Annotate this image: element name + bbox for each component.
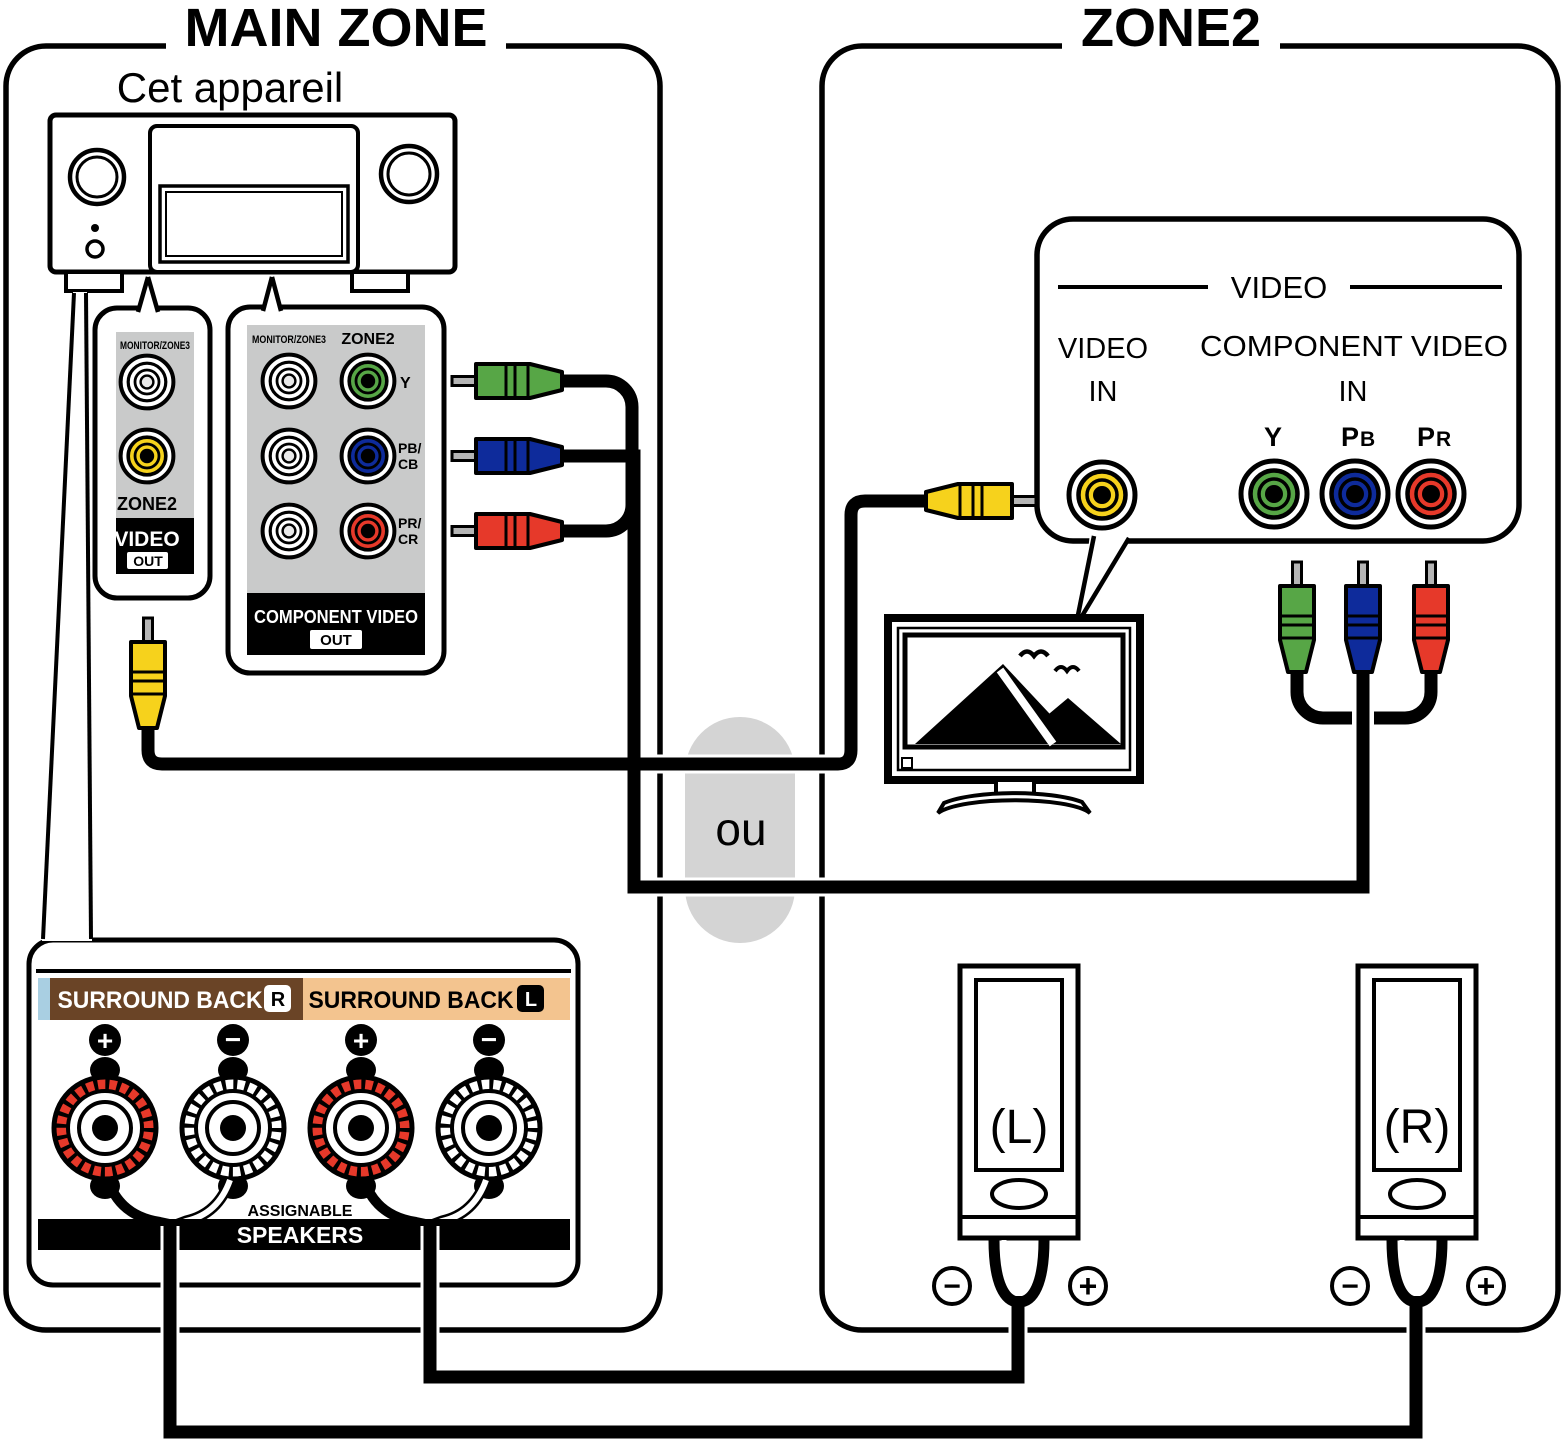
component-monitor-y-jack-icon xyxy=(263,355,316,408)
polarity-plus-1: + xyxy=(89,1024,121,1056)
connection-diagram: MAIN ZONE ZONE2 Cet appareil MONITOR/ZON… xyxy=(0,0,1562,1444)
svg-text:−: − xyxy=(1341,1270,1359,1303)
component-out-header-right: ZONE2 xyxy=(341,331,394,348)
header-accent-sliver xyxy=(38,978,50,1020)
svg-text:−: − xyxy=(225,1024,241,1055)
component-zone2-pb-jack-icon xyxy=(342,430,395,483)
bubble-pr-sub: R xyxy=(1436,428,1451,451)
polarity-minus-2: − xyxy=(473,1024,505,1056)
power-led-icon xyxy=(91,224,99,232)
speaker-terminal-panel: SURROUND BACK R SURROUND BACK L + − + − xyxy=(29,940,578,1285)
surround-back-r-label: SURROUND BACK xyxy=(58,987,264,1014)
polarity-plus-2: + xyxy=(345,1024,377,1056)
bubble-pb-sub: B xyxy=(1360,428,1375,451)
or-capsule: ou xyxy=(685,717,795,943)
speakers-label: SPEAKERS xyxy=(237,1222,364,1248)
component-zone2-pr-jack-icon xyxy=(342,505,395,558)
power-button-icon xyxy=(87,241,103,257)
device-label: Cet appareil xyxy=(117,64,343,111)
svg-text:+: + xyxy=(97,1025,113,1056)
component-out-footer: COMPONENT VIDEO xyxy=(254,607,418,627)
badge-l: L xyxy=(525,989,537,1011)
video-out-video-label: VIDEO xyxy=(114,528,179,551)
speaker-right-plus: + xyxy=(1468,1268,1504,1304)
zone2-pb-in-jack-icon xyxy=(1322,461,1388,527)
component-out-out-label: OUT xyxy=(320,632,352,649)
speaker-left-plus: + xyxy=(1070,1268,1106,1304)
component-video-out-panel: MONITOR/ZONE3 ZONE2 Y PB/ CB PR/ CR COMP… xyxy=(228,307,444,673)
main-zone-title: MAIN ZONE xyxy=(185,0,488,58)
bubble-component-l1: COMPONENT VIDEO xyxy=(1200,331,1508,363)
component-monitor-pb-jack-icon xyxy=(263,430,316,483)
video-out-out-label: OUT xyxy=(133,553,163,569)
video-out-panel: MONITOR/ZONE3 ZONE2 VIDEO OUT xyxy=(95,308,210,598)
component-out-cr-label: CR xyxy=(398,531,418,547)
zone2-video-out-jack-icon xyxy=(121,430,174,483)
receiver-foot-right xyxy=(352,272,408,291)
component-out-y-label: Y xyxy=(400,375,411,392)
zone2-video-in-jack-icon xyxy=(1069,462,1135,528)
bubble-pr-main: P xyxy=(1417,422,1435,452)
polarity-minus-1: − xyxy=(217,1024,249,1056)
video-out-header: MONITOR/ZONE3 xyxy=(120,340,190,352)
speaker-left-label: (L) xyxy=(990,1101,1049,1154)
bubble-video-in-l1: VIDEO xyxy=(1058,333,1148,365)
svg-text:+: + xyxy=(1079,1268,1098,1304)
zone2-pr-in-jack-icon xyxy=(1398,461,1464,527)
component-monitor-pr-jack-icon xyxy=(263,505,316,558)
zone2-title: ZONE2 xyxy=(1081,0,1261,58)
bubble-component-l2: IN xyxy=(1339,376,1368,408)
surround-back-l-label: SURROUND BACK xyxy=(309,987,515,1014)
component-out-pb-label: PB/ xyxy=(398,440,421,456)
bubble-video-in-l2: IN xyxy=(1089,376,1118,408)
video-out-zone2-label: ZONE2 xyxy=(117,494,177,514)
receiver-foot-left xyxy=(66,272,122,291)
zone2-video-bubble: VIDEO VIDEO IN COMPONENT VIDEO IN Y P B … xyxy=(1037,219,1519,541)
component-out-cb-label: CB xyxy=(398,456,418,472)
svg-text:−: − xyxy=(943,1270,961,1303)
component-zone2-y-jack-icon xyxy=(342,355,395,408)
diagram-canvas: MAIN ZONE ZONE2 Cet appareil MONITOR/ZON… xyxy=(0,0,1562,1444)
svg-text:+: + xyxy=(1477,1268,1496,1304)
badge-r: R xyxy=(271,989,286,1011)
monitor-zone3-video-jack-icon xyxy=(121,356,174,409)
svg-text:−: − xyxy=(481,1024,497,1055)
speaker-right-label: (R) xyxy=(1384,1101,1451,1154)
bubble-pb-main: P xyxy=(1341,422,1359,452)
zone2-y-in-jack-icon xyxy=(1241,461,1307,527)
bubble-video-header: VIDEO xyxy=(1231,270,1327,305)
bubble-y-label: Y xyxy=(1264,422,1282,452)
or-label: ou xyxy=(715,803,766,855)
tv-illustration xyxy=(888,618,1140,813)
receiver-illustration xyxy=(50,115,455,291)
assignable-label: ASSIGNABLE xyxy=(248,1203,353,1220)
component-out-header-left: MONITOR/ZONE3 xyxy=(252,334,326,346)
speaker-right-minus: − xyxy=(1332,1268,1368,1304)
component-out-pr-label: PR/ xyxy=(398,515,421,531)
svg-text:+: + xyxy=(353,1025,369,1056)
speaker-left-minus: − xyxy=(934,1268,970,1304)
